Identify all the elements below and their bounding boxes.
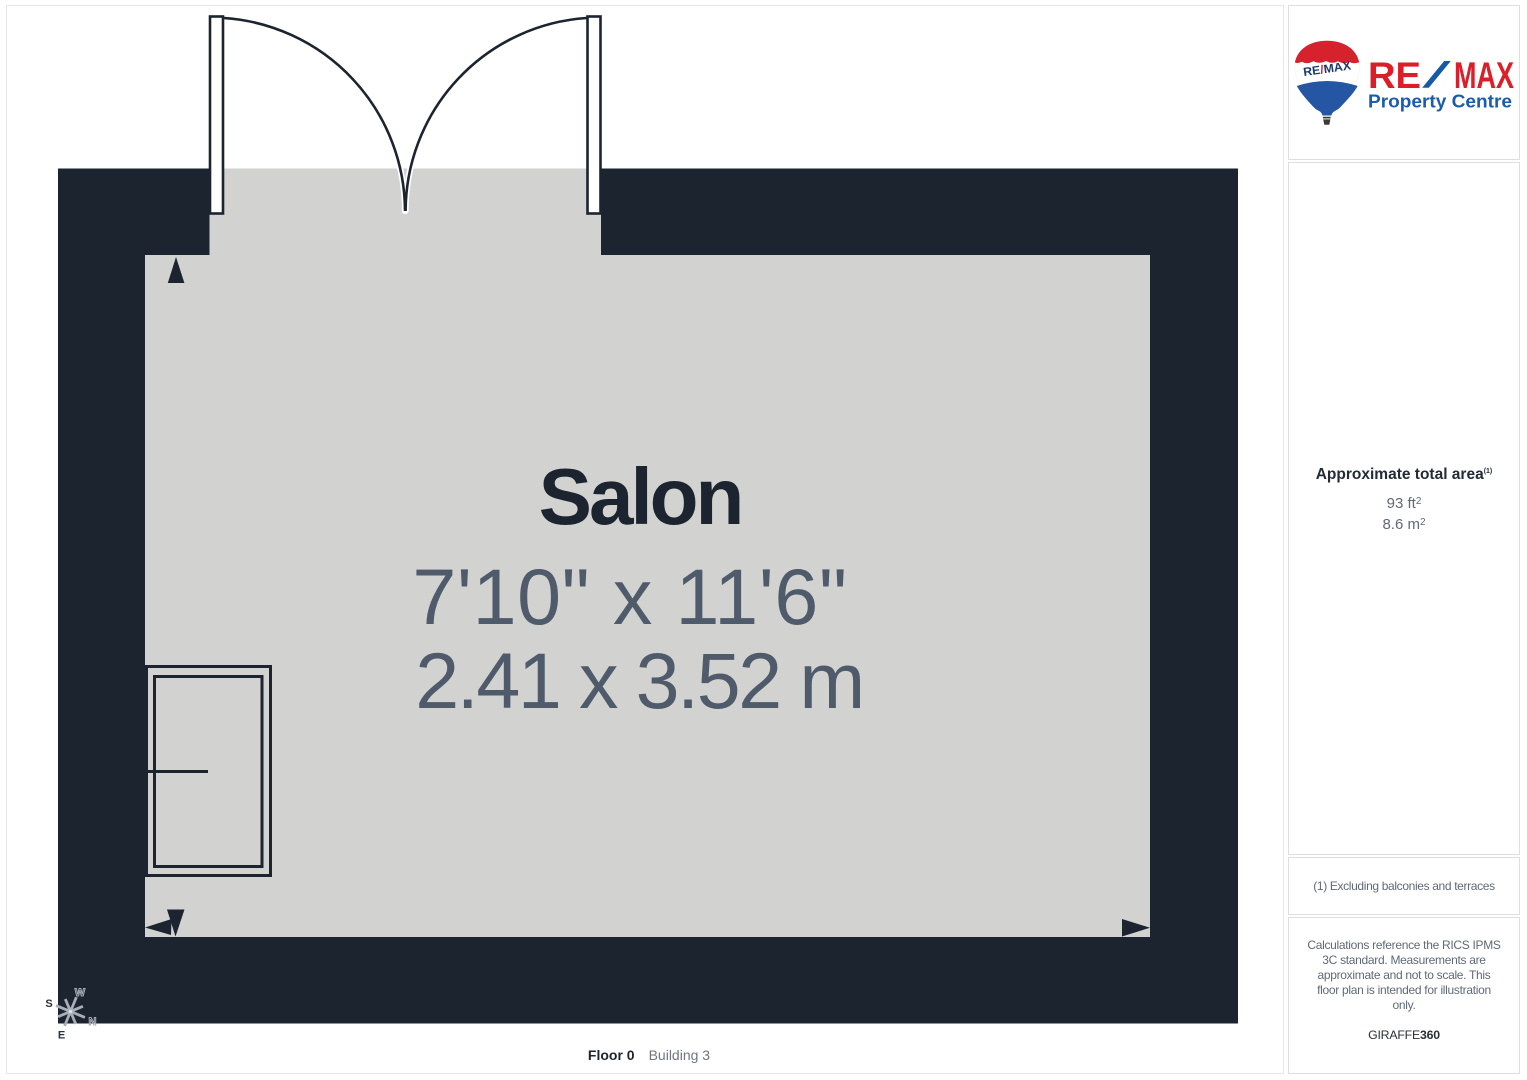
svg-text:E: E bbox=[58, 1030, 65, 1042]
svg-text:N: N bbox=[89, 1016, 97, 1028]
svg-text:2.41 x 3.52 m: 2.41 x 3.52 m bbox=[415, 636, 862, 725]
svg-text:Salon: Salon bbox=[539, 452, 742, 541]
svg-text:Property Centre: Property Centre bbox=[1368, 91, 1512, 112]
svg-text:S: S bbox=[45, 998, 52, 1010]
svg-text:W: W bbox=[75, 987, 86, 999]
svg-text:7'10" x 11'6": 7'10" x 11'6" bbox=[412, 552, 847, 641]
